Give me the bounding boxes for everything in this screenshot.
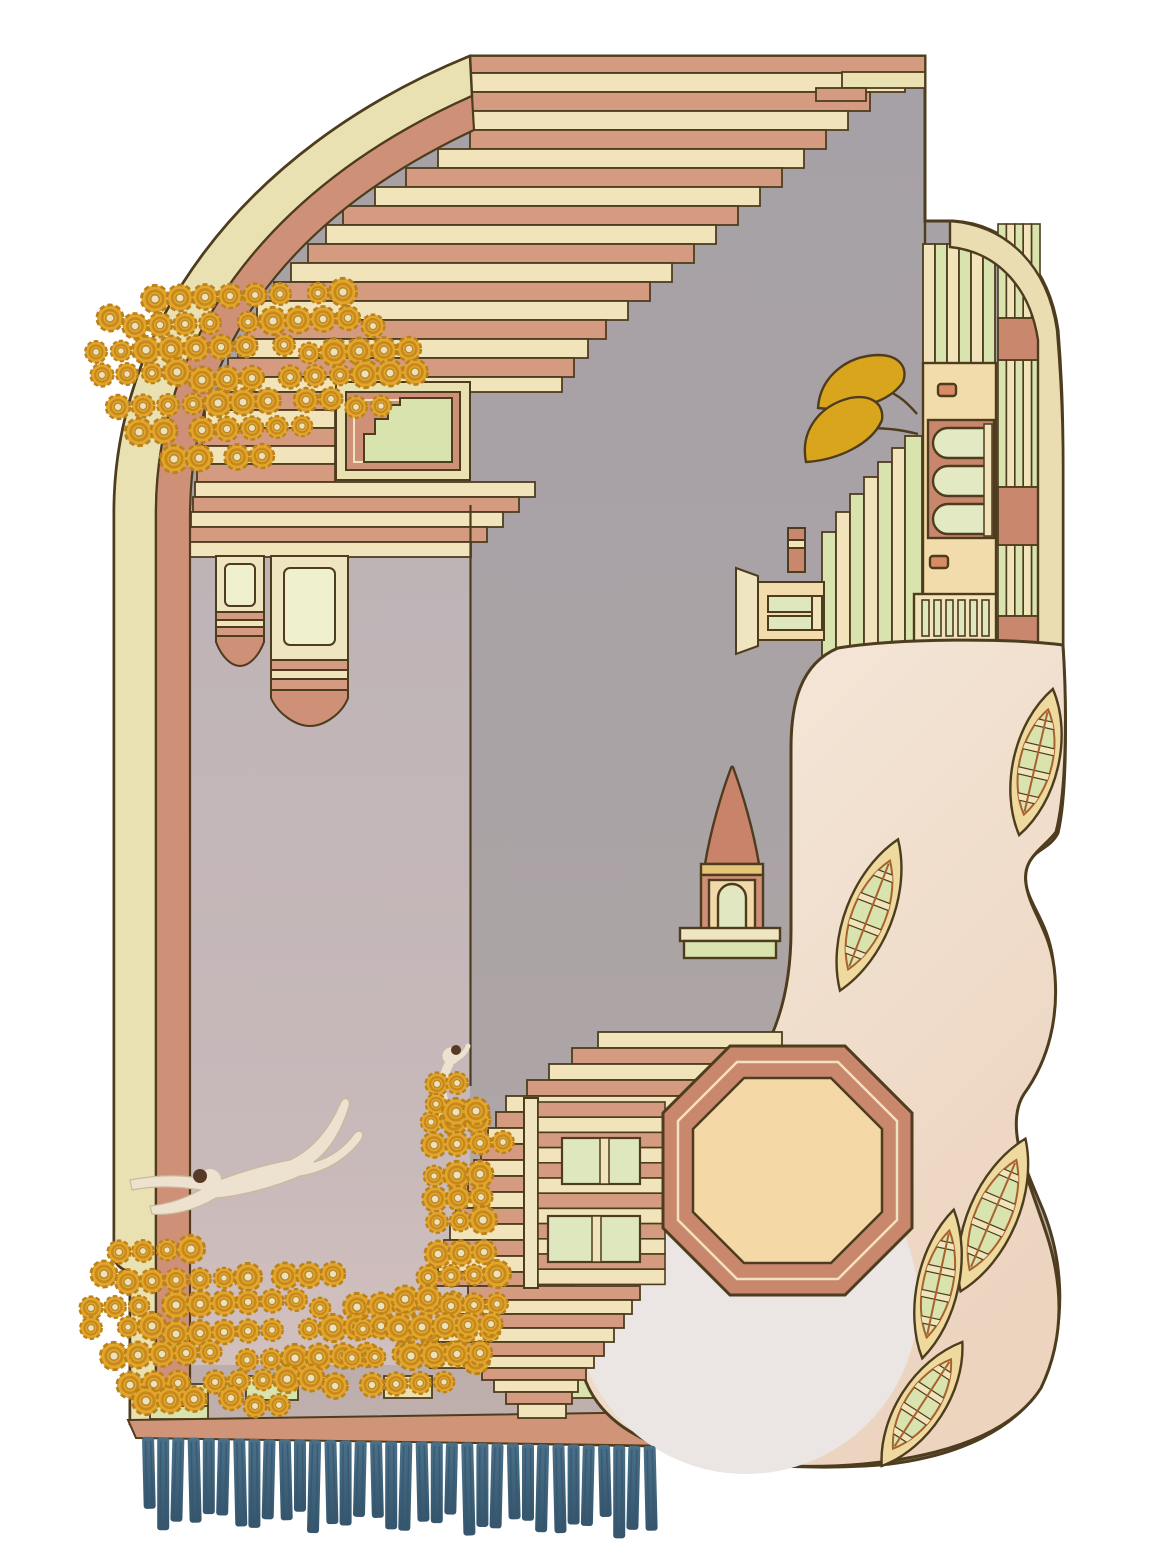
fringe-tassel bbox=[644, 1446, 658, 1531]
crochet-flower bbox=[310, 1298, 331, 1319]
crochet-flower bbox=[255, 388, 280, 413]
crochet-flower bbox=[174, 313, 197, 336]
crochet-flower bbox=[296, 1262, 321, 1287]
crochet-flower bbox=[192, 284, 217, 309]
crochet-flower bbox=[209, 335, 233, 359]
facade-top-stripes bbox=[923, 244, 995, 366]
crochet-flower bbox=[115, 1269, 140, 1294]
crochet-flower bbox=[261, 1349, 282, 1370]
crochet-flower bbox=[360, 1373, 384, 1397]
crochet-flower bbox=[183, 394, 204, 415]
crochet-flower bbox=[385, 1373, 408, 1396]
crochet-flower bbox=[446, 1186, 470, 1210]
crochet-flower bbox=[446, 1072, 468, 1094]
crochet-flower bbox=[273, 334, 295, 356]
crochet-flower bbox=[174, 1341, 198, 1365]
crochet-flower bbox=[440, 1265, 462, 1287]
crochet-flower bbox=[299, 343, 320, 364]
crochet-flower bbox=[199, 1341, 222, 1364]
crochet-flower bbox=[235, 335, 258, 358]
crochet-flower bbox=[132, 395, 155, 418]
crochet-flower bbox=[218, 284, 242, 308]
crochet-flower bbox=[371, 396, 392, 417]
crochet-flower bbox=[132, 1240, 154, 1262]
crochet-flower bbox=[443, 1161, 470, 1188]
fringe-tassel bbox=[248, 1439, 260, 1528]
crochet-flower bbox=[244, 1395, 267, 1418]
crochet-flower bbox=[181, 1386, 206, 1411]
fringe-tassel bbox=[522, 1444, 534, 1521]
crochet-flower bbox=[211, 1290, 236, 1315]
crochet-flower bbox=[336, 306, 360, 330]
crochet-flower bbox=[322, 1373, 347, 1398]
fringe-tassel bbox=[416, 1442, 430, 1522]
crochet-flower bbox=[165, 1269, 188, 1292]
crochet-flower bbox=[106, 395, 130, 419]
fringe-tassel bbox=[294, 1440, 306, 1512]
crochet-flower bbox=[177, 1235, 204, 1262]
crochet-flower bbox=[149, 1341, 174, 1366]
crochet-flower bbox=[253, 1370, 274, 1391]
crochet-flower bbox=[445, 1132, 469, 1156]
crochet-flower bbox=[224, 444, 249, 469]
fringe-tassel bbox=[340, 1441, 352, 1526]
fringe-tassel bbox=[535, 1444, 549, 1532]
crochet-flower bbox=[212, 1320, 236, 1344]
crochet-flower bbox=[432, 1313, 457, 1338]
crochet-flower bbox=[345, 396, 367, 418]
crochet-flower bbox=[320, 338, 347, 365]
crochet-flower bbox=[426, 1211, 448, 1233]
crochet-flower bbox=[238, 312, 259, 333]
crochet-flower bbox=[189, 1268, 211, 1290]
crochet-flower bbox=[189, 367, 215, 393]
crochet-flower bbox=[425, 1241, 451, 1267]
pendant-lantern-large bbox=[271, 556, 348, 726]
crochet-flower bbox=[310, 306, 335, 331]
crochet-flower bbox=[187, 1291, 213, 1317]
crochet-flower bbox=[469, 1132, 492, 1155]
crochet-flower bbox=[230, 389, 256, 415]
crochet-flower bbox=[463, 1098, 489, 1124]
crochet-flower bbox=[422, 1186, 447, 1211]
crochet-flower bbox=[125, 418, 152, 445]
crochet-flower bbox=[480, 1313, 503, 1336]
fringe-tassel bbox=[188, 1438, 202, 1523]
crochet-flower bbox=[426, 1073, 449, 1096]
crochet-flower bbox=[214, 366, 239, 391]
crochet-flower bbox=[259, 307, 286, 334]
crochet-flower bbox=[142, 363, 163, 384]
fringe-tassel bbox=[157, 1437, 169, 1530]
crochet-flower bbox=[273, 1365, 300, 1392]
crochet-flower bbox=[468, 1341, 492, 1365]
crochet-flower bbox=[111, 341, 132, 362]
crochet-flower bbox=[377, 360, 403, 386]
crochet-flower bbox=[385, 1314, 412, 1341]
crochet-flower bbox=[241, 417, 264, 440]
fringe-tassel bbox=[353, 1441, 367, 1517]
crochet-flower bbox=[424, 1166, 445, 1187]
crochet-flower bbox=[158, 336, 184, 362]
crochet-flower bbox=[464, 1265, 485, 1286]
crochet-flower bbox=[97, 305, 123, 331]
crochet-flower bbox=[285, 1289, 307, 1311]
crochet-flower bbox=[365, 1347, 386, 1368]
crochet-flower bbox=[269, 283, 291, 305]
crochet-flower bbox=[448, 1240, 473, 1265]
crochet-flower bbox=[125, 1342, 151, 1368]
crochet-flower bbox=[292, 416, 313, 437]
monkey-head-cap bbox=[451, 1045, 461, 1055]
crochet-flower bbox=[402, 359, 427, 384]
crochet-flower bbox=[219, 1386, 243, 1410]
fringe-tassel bbox=[598, 1445, 612, 1517]
crochet-flower bbox=[236, 1290, 260, 1314]
crochet-flower bbox=[434, 1372, 455, 1393]
crochet-flower bbox=[261, 1319, 283, 1341]
crochet-flower bbox=[467, 1161, 493, 1187]
crochet-flower bbox=[240, 366, 264, 390]
fringe-tassel bbox=[203, 1438, 215, 1514]
fringe-tassel bbox=[431, 1442, 443, 1523]
fringe-tassel bbox=[262, 1439, 276, 1519]
pendant-lantern-small bbox=[216, 556, 264, 666]
swimmer-hair-bun bbox=[193, 1169, 207, 1183]
fringe-tassel bbox=[613, 1445, 625, 1538]
fringe-tassel bbox=[279, 1439, 293, 1520]
fringe-tassel bbox=[461, 1442, 475, 1535]
fringe-tassels bbox=[142, 1437, 658, 1539]
crochet-flower bbox=[157, 394, 179, 416]
crochet-flower bbox=[108, 1241, 131, 1264]
crochet-flower bbox=[279, 366, 302, 389]
octagon-plaza bbox=[663, 1046, 912, 1295]
crochet-flower bbox=[341, 1347, 363, 1369]
fringe-tassel bbox=[626, 1446, 640, 1530]
crochet-flower bbox=[85, 341, 107, 363]
crochet-flower bbox=[308, 283, 329, 304]
crochet-flower bbox=[470, 1186, 493, 1209]
crochet-flower bbox=[100, 1342, 127, 1369]
crochet-flower bbox=[116, 363, 138, 385]
crochet-flower bbox=[469, 1206, 496, 1233]
crochet-flower bbox=[371, 337, 396, 362]
crochet-flower bbox=[299, 1319, 320, 1340]
fringe-tassel bbox=[385, 1441, 397, 1529]
crochet-flower bbox=[244, 284, 267, 307]
crochet-flower bbox=[397, 337, 421, 361]
crochet-flower bbox=[330, 365, 351, 386]
fringe-tassel bbox=[581, 1445, 595, 1526]
fringe-tassel bbox=[216, 1438, 230, 1515]
crochet-flower bbox=[162, 1291, 189, 1318]
crochet-flower bbox=[80, 1297, 103, 1320]
crochet-flower bbox=[104, 1296, 126, 1318]
rug-artwork bbox=[0, 0, 1165, 1558]
fringe-tassel bbox=[233, 1438, 247, 1526]
crochet-flower bbox=[298, 1365, 324, 1391]
fringe-tassel bbox=[398, 1442, 412, 1531]
crochet-flower bbox=[132, 336, 159, 363]
crochet-flower bbox=[160, 445, 187, 472]
crochet-flower bbox=[236, 1349, 258, 1371]
fringe-tassel bbox=[444, 1442, 458, 1514]
crochet-flower bbox=[140, 1269, 164, 1293]
crochet-flower bbox=[294, 388, 318, 412]
crochet-flower bbox=[118, 1317, 139, 1338]
fringe-tassel bbox=[370, 1441, 384, 1518]
crochet-flower bbox=[167, 285, 193, 311]
crochet-flower bbox=[392, 1286, 418, 1312]
crochet-flower bbox=[215, 417, 239, 441]
fringe-tassel bbox=[552, 1444, 566, 1533]
crochet-flower bbox=[353, 1319, 374, 1340]
crochet-flower bbox=[351, 360, 378, 387]
crochet-flower bbox=[261, 1290, 284, 1313]
fringe-tassel bbox=[170, 1438, 184, 1522]
crochet-flower bbox=[346, 338, 372, 364]
crochet-flower bbox=[304, 365, 326, 387]
crochet-flower bbox=[138, 1312, 165, 1339]
striped-house bbox=[524, 1098, 665, 1288]
crochet-flower bbox=[214, 1268, 235, 1289]
crochet-flower bbox=[319, 1314, 346, 1341]
crochet-flower bbox=[250, 444, 274, 468]
crochet-flower bbox=[141, 285, 168, 312]
fringe-tassel bbox=[307, 1440, 321, 1533]
fringe-tassel bbox=[490, 1443, 504, 1528]
fringe-tassel bbox=[142, 1437, 156, 1509]
crochet-flower bbox=[122, 313, 147, 338]
crochet-flower bbox=[421, 1342, 447, 1368]
fringe-tassel bbox=[476, 1443, 488, 1527]
crochet-flower bbox=[183, 335, 208, 360]
crochet-flower bbox=[492, 1131, 514, 1153]
fringe-tassel bbox=[507, 1443, 521, 1519]
fringe-tassel bbox=[324, 1440, 338, 1524]
crochet-flower bbox=[189, 417, 214, 442]
crochet-flower bbox=[483, 1260, 510, 1287]
crochet-flower bbox=[80, 1317, 102, 1339]
crochet-flower bbox=[456, 1313, 480, 1337]
crochet-flower bbox=[148, 313, 172, 337]
crochet-flower bbox=[186, 445, 212, 471]
crochet-flower bbox=[450, 1211, 471, 1232]
crochet-flower bbox=[444, 1341, 469, 1366]
crochet-flower bbox=[268, 1394, 290, 1416]
crochet-flower bbox=[129, 1296, 150, 1317]
crochet-flower bbox=[234, 1263, 261, 1290]
crochet-flower bbox=[272, 1263, 298, 1289]
crochet-flower bbox=[199, 312, 221, 334]
crochet-flower bbox=[362, 315, 385, 338]
crochet-flower bbox=[409, 1372, 431, 1394]
crochet-flower bbox=[163, 358, 190, 385]
crochet-flower bbox=[157, 1387, 183, 1413]
crochet-flower bbox=[151, 418, 177, 444]
crochet-flower bbox=[409, 1314, 435, 1340]
fringe-tassel bbox=[568, 1445, 580, 1525]
crochet-flower bbox=[204, 389, 231, 416]
crochet-flower bbox=[415, 1285, 440, 1310]
crochet-flower bbox=[132, 1387, 159, 1414]
crochet-flower bbox=[91, 364, 114, 387]
crochet-flower bbox=[421, 1132, 446, 1157]
crochet-flower bbox=[397, 1342, 424, 1369]
crochet-flower bbox=[472, 1240, 496, 1264]
crochet-flower bbox=[285, 307, 311, 333]
crochet-flower bbox=[266, 416, 288, 438]
crochet-flower bbox=[91, 1261, 117, 1287]
crochet-flower bbox=[157, 1240, 178, 1261]
crochet-flower bbox=[237, 1320, 260, 1343]
crochet-flower bbox=[329, 278, 356, 305]
crochet-flower bbox=[321, 1262, 345, 1286]
rug-photo: Art-deco landscape rug: arched top-left … bbox=[0, 0, 1165, 1558]
crochet-flower bbox=[320, 388, 343, 411]
